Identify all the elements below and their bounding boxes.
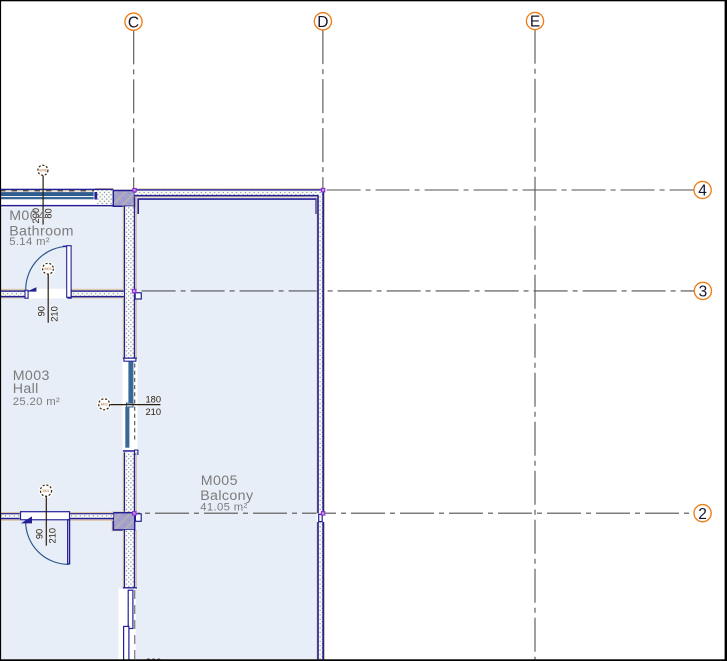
svg-text:5.14 m²: 5.14 m² <box>9 236 50 248</box>
svg-text:W08: W08 <box>39 169 46 173</box>
svg-text:M005: M005 <box>201 473 238 489</box>
svg-text:210: 210 <box>50 306 60 322</box>
svg-text:4: 4 <box>698 183 707 200</box>
svg-text:180: 180 <box>146 395 162 405</box>
svg-text:2: 2 <box>698 506 707 523</box>
svg-text:M01: M01 <box>43 489 50 493</box>
svg-text:M004: M004 <box>9 208 46 224</box>
svg-text:90: 90 <box>34 529 44 539</box>
svg-text:210: 210 <box>146 407 162 417</box>
svg-text:Hall: Hall <box>13 381 39 397</box>
svg-text:41.05 m²: 41.05 m² <box>200 502 247 514</box>
svg-text:M03: M03 <box>45 267 52 271</box>
svg-text:210: 210 <box>48 528 58 544</box>
svg-text:90: 90 <box>37 306 47 316</box>
svg-text:25.20 m²: 25.20 m² <box>13 396 60 408</box>
svg-text:E: E <box>530 14 540 31</box>
svg-text:D: D <box>317 14 328 31</box>
svg-text:3: 3 <box>699 284 708 301</box>
svg-text:M02: M02 <box>101 403 108 407</box>
svg-text:C: C <box>128 14 139 31</box>
